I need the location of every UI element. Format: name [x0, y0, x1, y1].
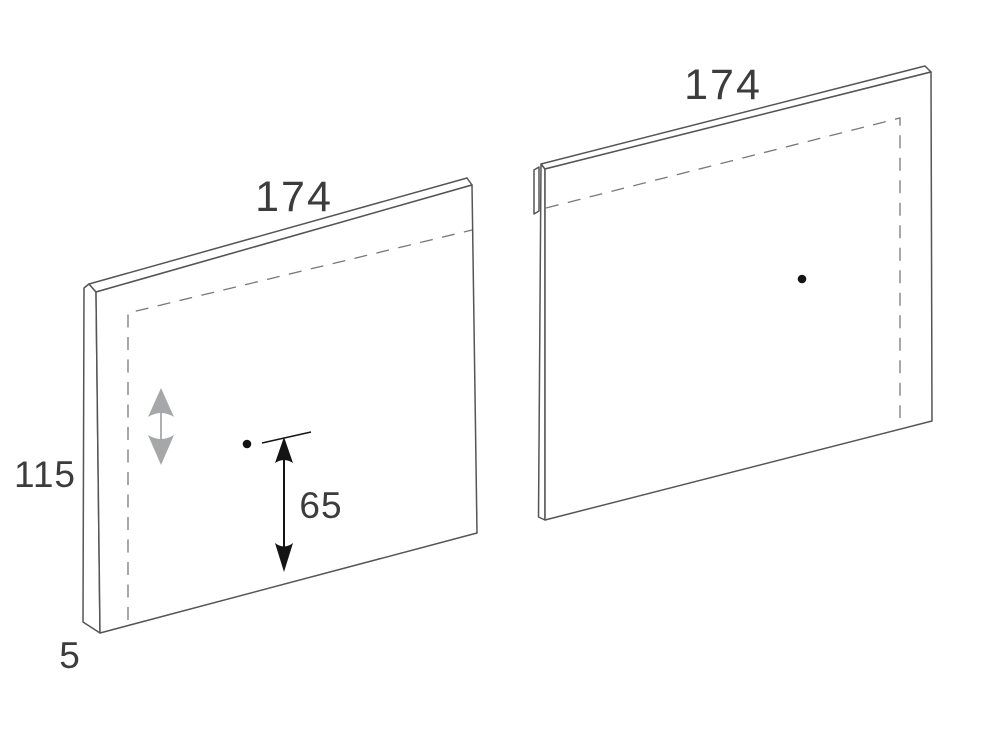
left-panel	[83, 178, 477, 633]
label-hole-offset-65: 65	[299, 485, 342, 526]
left-panel-hole-dot-icon	[243, 440, 252, 449]
right-panel	[534, 66, 932, 520]
panel-assembly-diagram: 174 174 115 5 65	[0, 0, 1000, 750]
label-left-panel-width: 174	[255, 173, 333, 221]
label-left-panel-thickness: 5	[59, 635, 81, 676]
right-panel-front-face	[545, 72, 932, 520]
diagram-canvas: 174 174 115 5 65	[0, 0, 1000, 750]
right-panel-side-edge-face	[539, 164, 546, 520]
label-right-panel-width: 174	[684, 61, 762, 109]
right-panel-hole-dot-icon	[798, 275, 807, 284]
right-panel-hanger-tab	[534, 167, 539, 214]
label-left-panel-height: 115	[14, 454, 76, 495]
